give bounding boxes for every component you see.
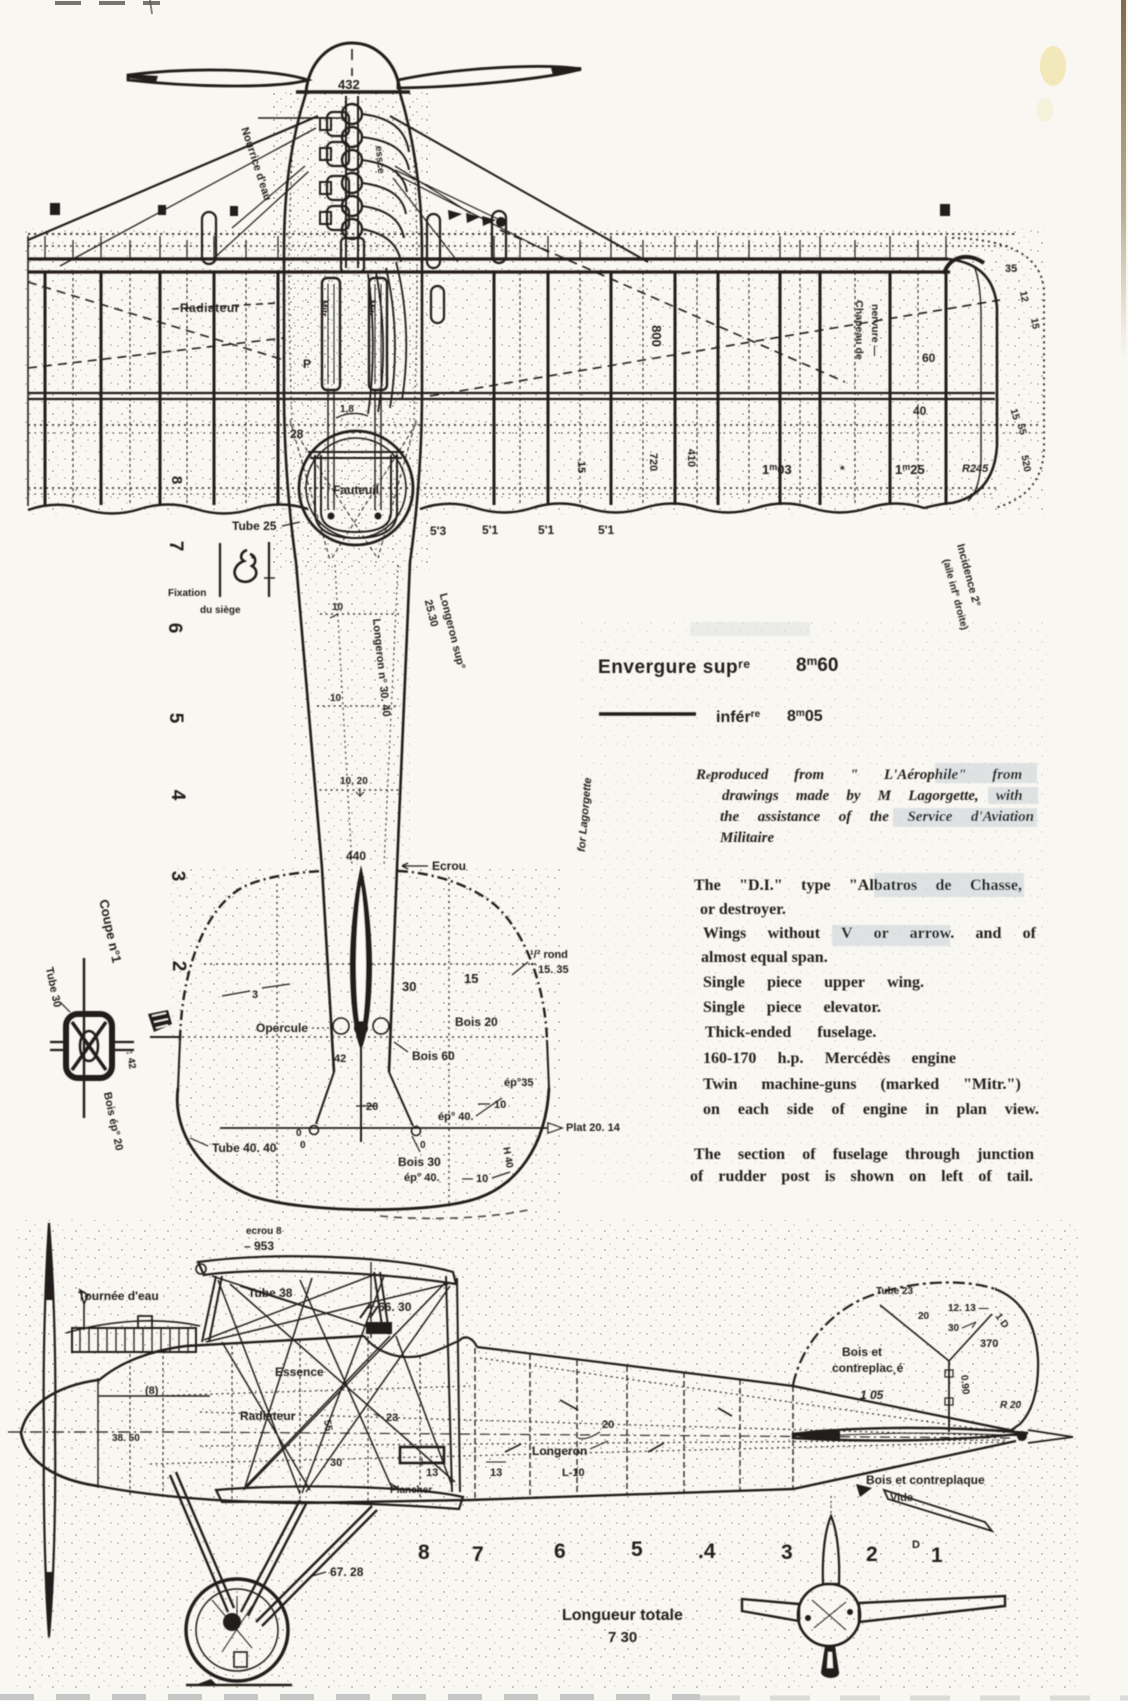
svg-text:12. 13 —: 12. 13 — [948, 1303, 989, 1314]
svg-text:Single piece elevator.: Single piece elevator. [703, 999, 881, 1016]
svg-text:15. 35: 15. 35 [538, 964, 569, 976]
svg-text:20: 20 [918, 1311, 930, 1322]
svg-text:15: 15 [575, 461, 587, 473]
svg-text:370: 370 [980, 1338, 998, 1350]
svg-text:Thick-ended fuselage.: Thick-ended fuselage. [705, 1024, 876, 1041]
svg-text:8: 8 [418, 1541, 430, 1564]
svg-text:ép° 40.: ép° 40. [438, 1111, 474, 1123]
svg-text:10, 20: 10, 20 [340, 776, 368, 787]
svg-text:1: 1 [931, 1544, 943, 1567]
svg-text:3: 3 [781, 1541, 793, 1564]
svg-text:7: 7 [165, 541, 186, 552]
svg-text:Tube 23: Tube 23 [876, 1286, 913, 1297]
svg-text:Single piece upper wing.: Single piece upper wing. [703, 974, 924, 991]
svg-text:ép°35: ép°35 [504, 1077, 533, 1089]
svg-text:— 10: — 10 [462, 1173, 488, 1185]
svg-text:20: 20 [366, 1101, 378, 1113]
svg-text:35: 35 [1005, 263, 1017, 275]
svg-text:40: 40 [913, 404, 927, 418]
svg-text:1,8: 1,8 [340, 404, 354, 415]
svg-text:5: 5 [165, 713, 186, 724]
svg-text:almost equal span.: almost equal span. [701, 949, 828, 966]
svg-text:5'1: 5'1 [482, 523, 499, 537]
svg-text:.4: .4 [698, 1540, 716, 1563]
svg-text:800: 800 [649, 325, 664, 347]
svg-text:Wings without V or arrow. and: Wings without V or arrow. and of [703, 925, 1037, 942]
svg-text:60: 60 [922, 351, 936, 365]
svg-text:13: 13 [490, 1467, 502, 1479]
svg-text:ecrou 8: ecrou 8 [246, 1226, 282, 1237]
svg-text:Bois 60: Bois 60 [412, 1049, 455, 1063]
svg-text:0: 0 [300, 1140, 306, 1151]
svg-text:5'1: 5'1 [598, 523, 615, 537]
svg-text:Longueur totale: Longueur totale [562, 1607, 683, 1624]
svg-text:10: 10 [494, 1099, 506, 1111]
svg-text:0.90: 0.90 [958, 1375, 971, 1396]
svg-text:P: P [303, 357, 311, 371]
svg-text:440: 440 [346, 849, 366, 863]
svg-text:42: 42 [334, 1053, 346, 1065]
svg-text:R 20: R 20 [1000, 1400, 1022, 1411]
svg-text:The "D.I." type "Albatros de C: The "D.I." type "Albatros de Chasse, [694, 877, 1022, 894]
svg-text:2: 2 [866, 1543, 878, 1566]
svg-text:4: 4 [167, 790, 188, 801]
svg-text:drawings made by M Lagorgette: drawings made by M Lagorgette, with [722, 788, 1023, 804]
svg-text:Envergure supre: Envergure supre [598, 657, 750, 678]
svg-text:of rudder post is shown on lef: of rudder post is shown on left of tail. [690, 1168, 1033, 1185]
svg-text:15: 15 [464, 971, 478, 986]
svg-text:8m60: 8m60 [796, 654, 838, 676]
svg-text:Bois 20: Bois 20 [455, 1015, 498, 1029]
svg-text:7: 7 [472, 1543, 484, 1566]
svg-text:Bois et: Bois et [842, 1345, 882, 1359]
svg-text:Tube 25: Tube 25 [232, 519, 277, 533]
svg-text:D: D [912, 1539, 920, 1551]
svg-text:nervure —: nervure — [869, 304, 881, 356]
svg-text:Plat 20. 14: Plat 20. 14 [566, 1122, 621, 1134]
svg-text:23: 23 [386, 1412, 398, 1424]
svg-text:contreplac¸é: contreplac¸é [832, 1361, 904, 1375]
svg-text:8m05: 8m05 [787, 708, 823, 725]
svg-text:Mitr: Mitr [319, 300, 329, 317]
svg-text:2: 2 [168, 961, 189, 972]
svg-text:30: 30 [402, 979, 416, 994]
svg-text:¹/² rond: ¹/² rond [530, 949, 568, 961]
svg-text:– 953: – 953 [244, 1239, 274, 1253]
svg-text:160-170 h.p. Mercédès engine: 160-170 h.p. Mercédès engine [703, 1050, 956, 1067]
svg-text:Tournée d'eau: Tournée d'eau [78, 1289, 159, 1303]
svg-text:30: 30 [330, 1457, 342, 1469]
svg-text:67. 28: 67. 28 [330, 1565, 364, 1579]
svg-text:10: 10 [332, 602, 344, 613]
svg-text:L-10: L-10 [562, 1467, 585, 1479]
svg-text:Mitr: Mitr [366, 300, 376, 317]
svg-text:on each side of engine in plan: on each side of engine in plan view. [703, 1101, 1039, 1118]
svg-text:13: 13 [426, 1467, 438, 1479]
svg-text:Reproduced from " L'Aérophile": Reproduced from " L'Aérophile" from [695, 767, 1022, 783]
svg-text:R245: R245 [962, 463, 989, 475]
svg-text:ép° 40.: ép° 40. [404, 1172, 440, 1184]
svg-text:Opercule: Opercule [256, 1021, 308, 1035]
svg-text:1 05: 1 05 [860, 1388, 884, 1402]
svg-text:Tube 40. 40: Tube 40. 40 [212, 1141, 277, 1155]
svg-text:Militaire: Militaire [719, 830, 775, 846]
svg-text:0: 0 [420, 1140, 426, 1151]
svg-text:6: 6 [554, 1540, 566, 1563]
svg-text:432: 432 [338, 77, 360, 92]
svg-text:The section of fuselage throug: The section of fuselage through junction [694, 1146, 1034, 1163]
svg-text:7 30: 7 30 [608, 1629, 637, 1646]
svg-text:the assistance of the Service: the assistance of the Service d'Aviation [720, 809, 1034, 825]
svg-text:720: 720 [647, 453, 659, 471]
svg-text:Bois 30: Bois 30 [398, 1155, 441, 1169]
svg-text:20: 20 [602, 1419, 614, 1431]
svg-text:Ecrou: Ecrou [432, 859, 466, 873]
svg-text:3: 3 [167, 871, 188, 882]
svg-text:*: * [840, 463, 845, 477]
svg-text:8: 8 [168, 476, 185, 484]
svg-text:1m03: 1m03 [762, 462, 792, 477]
svg-text:410: 410 [685, 449, 697, 467]
svg-text:(8): (8) [145, 1385, 159, 1397]
svg-text:5'3: 5'3 [430, 524, 447, 538]
svg-text:Essence: Essence [275, 1365, 324, 1379]
svg-text:38. 50: 38. 50 [112, 1433, 140, 1444]
svg-text:du siège: du siège [200, 605, 241, 616]
svg-text:Longeron: Longeron [532, 1444, 587, 1458]
svg-text:10: 10 [330, 693, 342, 704]
svg-text:Twin machine-guns (marked "Mit: Twin machine-guns (marked "Mitr.") [703, 1076, 1021, 1093]
svg-text:Vide: Vide [890, 1492, 913, 1504]
svg-text:Fixation: Fixation [168, 588, 206, 599]
svg-text:5: 5 [631, 1538, 643, 1561]
svg-text:Chapeau de: Chapeau de [853, 300, 865, 360]
svg-text:Bois et contreplaque: Bois et contreplaque [866, 1473, 985, 1487]
svg-text:1m25: 1m25 [895, 462, 925, 477]
svg-text:Tube 38: Tube 38 [248, 1286, 293, 1300]
svg-text:0: 0 [296, 1128, 302, 1139]
svg-text:28: 28 [290, 427, 304, 441]
svg-text:6: 6 [164, 623, 185, 634]
svg-text:30: 30 [948, 1323, 960, 1334]
svg-text:3: 3 [252, 989, 258, 1001]
svg-text:5'1: 5'1 [538, 523, 555, 537]
svg-text:Radiateur: Radiateur [240, 1409, 296, 1423]
svg-text:66. 30: 66. 30 [378, 1300, 412, 1314]
svg-text:Fauteuil: Fauteuil [333, 483, 379, 497]
svg-text:or destroyer.: or destroyer. [700, 901, 786, 918]
